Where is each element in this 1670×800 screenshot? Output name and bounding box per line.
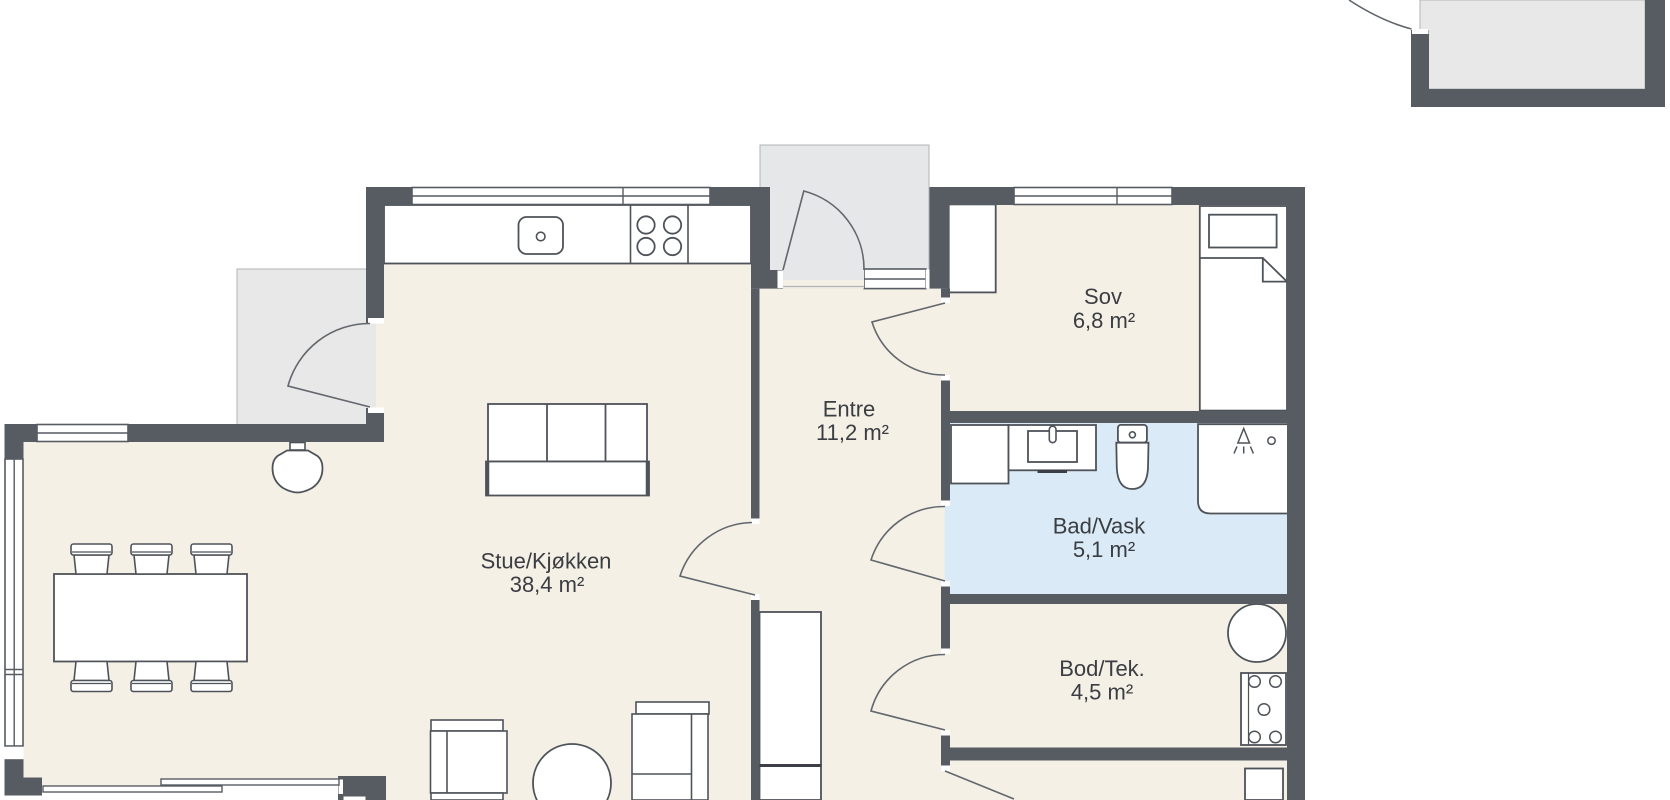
svg-text:Bod/Tek.: Bod/Tek. [1059, 656, 1145, 681]
svg-text:4,5 m²: 4,5 m² [1071, 680, 1133, 705]
svg-text:Entre: Entre [823, 397, 876, 422]
svg-text:Bad/Vask: Bad/Vask [1053, 514, 1147, 539]
svg-text:11,2 m²: 11,2 m² [816, 420, 889, 445]
svg-text:5,1 m²: 5,1 m² [1073, 537, 1135, 562]
svg-text:6,8 m²: 6,8 m² [1073, 308, 1135, 333]
svg-text:Stue/Kjøkken: Stue/Kjøkken [481, 548, 612, 573]
svg-text:Sov: Sov [1084, 284, 1122, 309]
svg-text:38,4 m²: 38,4 m² [510, 572, 585, 597]
